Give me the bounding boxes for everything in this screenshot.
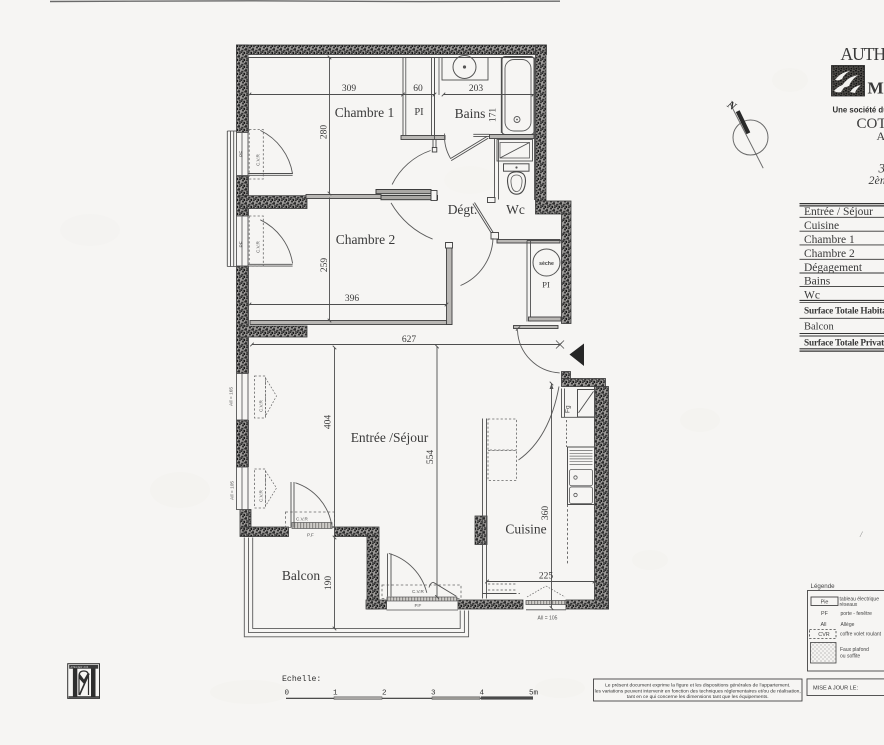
svg-text:Entrée /Séjour: Entrée /Séjour <box>351 430 429 445</box>
svg-text:Wc: Wc <box>506 202 525 217</box>
svg-text:P.F: P.F <box>307 533 314 539</box>
svg-text:PF: PF <box>239 151 245 157</box>
svg-text:CVR: CVR <box>818 632 829 638</box>
svg-text:Surface Totale Habitable: Surface Totale Habitable <box>804 307 884 317</box>
svg-text:C.V.R: C.V.R <box>259 399 264 412</box>
svg-text:Surface Totale Privative: Surface Totale Privative <box>804 339 884 349</box>
svg-text:tant en ce qui concerne les di: tant en ce qui concerne les dimensions t… <box>627 694 769 700</box>
svg-text:réseaux: réseaux <box>840 602 858 608</box>
svg-text:C.V.R: C.V.R <box>296 517 309 522</box>
svg-text:309: 309 <box>342 84 357 94</box>
svg-text:Le présent document exprime la: Le présent document exprime la figure et… <box>605 682 790 688</box>
svg-text:AIl = 105: AIl = 105 <box>230 481 236 500</box>
svg-text:AIl = 165: AIl = 165 <box>229 387 235 406</box>
svg-text:Bains: Bains <box>455 106 486 121</box>
svg-text:396: 396 <box>345 294 360 304</box>
svg-text:Cuisine: Cuisine <box>505 522 546 537</box>
svg-text:AUTHEN: AUTHEN <box>841 44 884 64</box>
svg-text:C.V.R: C.V.R <box>256 153 261 166</box>
svg-text:Bains: Bains <box>804 276 831 288</box>
svg-text:203: 203 <box>469 84 484 94</box>
svg-text:PF: PF <box>821 611 829 617</box>
svg-text:PF: PF <box>239 241 245 247</box>
svg-text:171: 171 <box>489 108 499 123</box>
svg-text:404: 404 <box>324 415 334 430</box>
svg-text:C.V.R: C.V.R <box>412 589 425 594</box>
svg-text:Légende: Légende <box>811 583 836 590</box>
svg-text:sèche: sèche <box>539 261 554 267</box>
svg-text:AU: AU <box>877 129 884 143</box>
svg-text:Balcon: Balcon <box>804 322 834 333</box>
svg-text:Wc: Wc <box>804 290 820 302</box>
svg-text:Faux plafond: Faux plafond <box>840 647 869 653</box>
svg-text:MISE A JOUR LE:: MISE A JOUR LE: <box>813 685 859 691</box>
svg-text:C.V.R: C.V.R <box>259 489 264 502</box>
svg-text:Chambre 2: Chambre 2 <box>336 232 396 247</box>
svg-text:5m: 5m <box>529 690 539 698</box>
svg-text:1: 1 <box>333 690 338 698</box>
svg-text:627: 627 <box>402 335 417 345</box>
svg-text:360: 360 <box>541 506 551 521</box>
svg-text:Entrée / Séjour: Entrée / Séjour <box>804 206 873 218</box>
svg-text:Cuisine: Cuisine <box>804 220 839 232</box>
svg-text:190: 190 <box>324 576 334 591</box>
svg-text:coffre volet roulant: coffre volet roulant <box>840 632 882 638</box>
svg-text:porte - fenêtre: porte - fenêtre <box>841 611 873 617</box>
svg-text:Fg: Fg <box>565 405 572 413</box>
svg-text:60: 60 <box>413 84 423 94</box>
svg-text:4: 4 <box>480 690 485 698</box>
svg-text:Dégagement: Dégagement <box>804 262 863 274</box>
svg-text:Pie: Pie <box>821 599 829 605</box>
svg-text:280: 280 <box>320 125 330 140</box>
svg-text:3: 3 <box>431 690 436 698</box>
svg-text:ou soffite: ou soffite <box>840 654 860 660</box>
svg-text:2: 2 <box>382 690 387 698</box>
svg-text:ATELIER 234: ATELIER 234 <box>71 665 89 669</box>
svg-text:PI: PI <box>542 280 550 290</box>
svg-text:0: 0 <box>285 690 290 698</box>
svg-text:2ème: 2ème <box>869 173 884 187</box>
svg-text:ME: ME <box>868 79 884 98</box>
svg-text:Echelle:: Echelle: <box>282 674 321 684</box>
svg-text:All: All <box>821 622 827 628</box>
svg-text:554: 554 <box>426 450 436 465</box>
svg-text:P.F: P.F <box>415 603 422 609</box>
svg-text:Allège: Allège <box>841 622 855 628</box>
svg-text:C.V.R: C.V.R <box>256 240 261 253</box>
svg-text:AIl = 105: AIl = 105 <box>538 616 558 622</box>
svg-text:Chambre 1: Chambre 1 <box>804 234 855 246</box>
svg-text:Une société du: Une société du <box>833 106 884 115</box>
svg-text:Dégt.: Dégt. <box>448 202 478 217</box>
svg-text:PI: PI <box>414 107 424 118</box>
svg-text:Balcon: Balcon <box>282 568 320 583</box>
svg-text:Chambre 2: Chambre 2 <box>804 248 855 260</box>
svg-text:Chambre 1: Chambre 1 <box>335 105 395 120</box>
svg-text:225: 225 <box>539 572 554 582</box>
svg-text:les variations peuvent interve: les variations peuvent intervenir en fon… <box>595 688 801 694</box>
svg-text:259: 259 <box>320 258 330 273</box>
